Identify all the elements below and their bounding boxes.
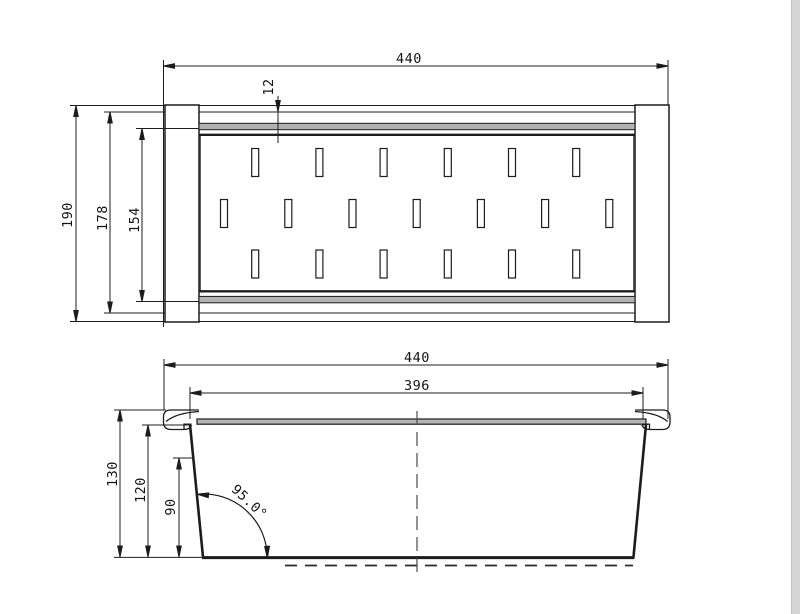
drawing-sheet: 440 12 190 178 154 440 396 130 120 90 95… [0,0,800,614]
left-wall [190,425,203,558]
right-bracket [635,105,669,322]
dim-440-top [164,60,669,327]
left-bracket [165,105,199,322]
dim-label-inner-depth: 154 [127,200,143,240]
bottom-rail [199,296,635,302]
dim-label-body-height: 120 [133,470,149,510]
dim-label-rail-offset: 12 [261,70,277,104]
top-rail [199,123,635,129]
drawing-canvas [0,0,800,614]
dim-154 [136,129,199,302]
dim-label-inner-height: 90 [163,487,179,527]
dim-label-overall-width-side: 440 [387,350,447,366]
slot-row-bottom [252,250,580,278]
dim-label-overall-width-top: 440 [379,51,439,67]
left-hook [164,410,200,430]
dim-label-overall-height: 130 [105,454,121,494]
dim-label-inner-width: 396 [387,378,447,394]
dim-label-overall-depth: 190 [60,195,76,235]
right-wall [634,425,647,558]
slot-row-top [252,149,580,177]
plan-view [70,60,669,327]
dim-190 [70,106,165,322]
slot-row-middle [221,200,613,228]
rim-band [197,419,646,424]
window-edge-strip [791,0,800,614]
dim-label-body-depth: 178 [95,198,111,238]
